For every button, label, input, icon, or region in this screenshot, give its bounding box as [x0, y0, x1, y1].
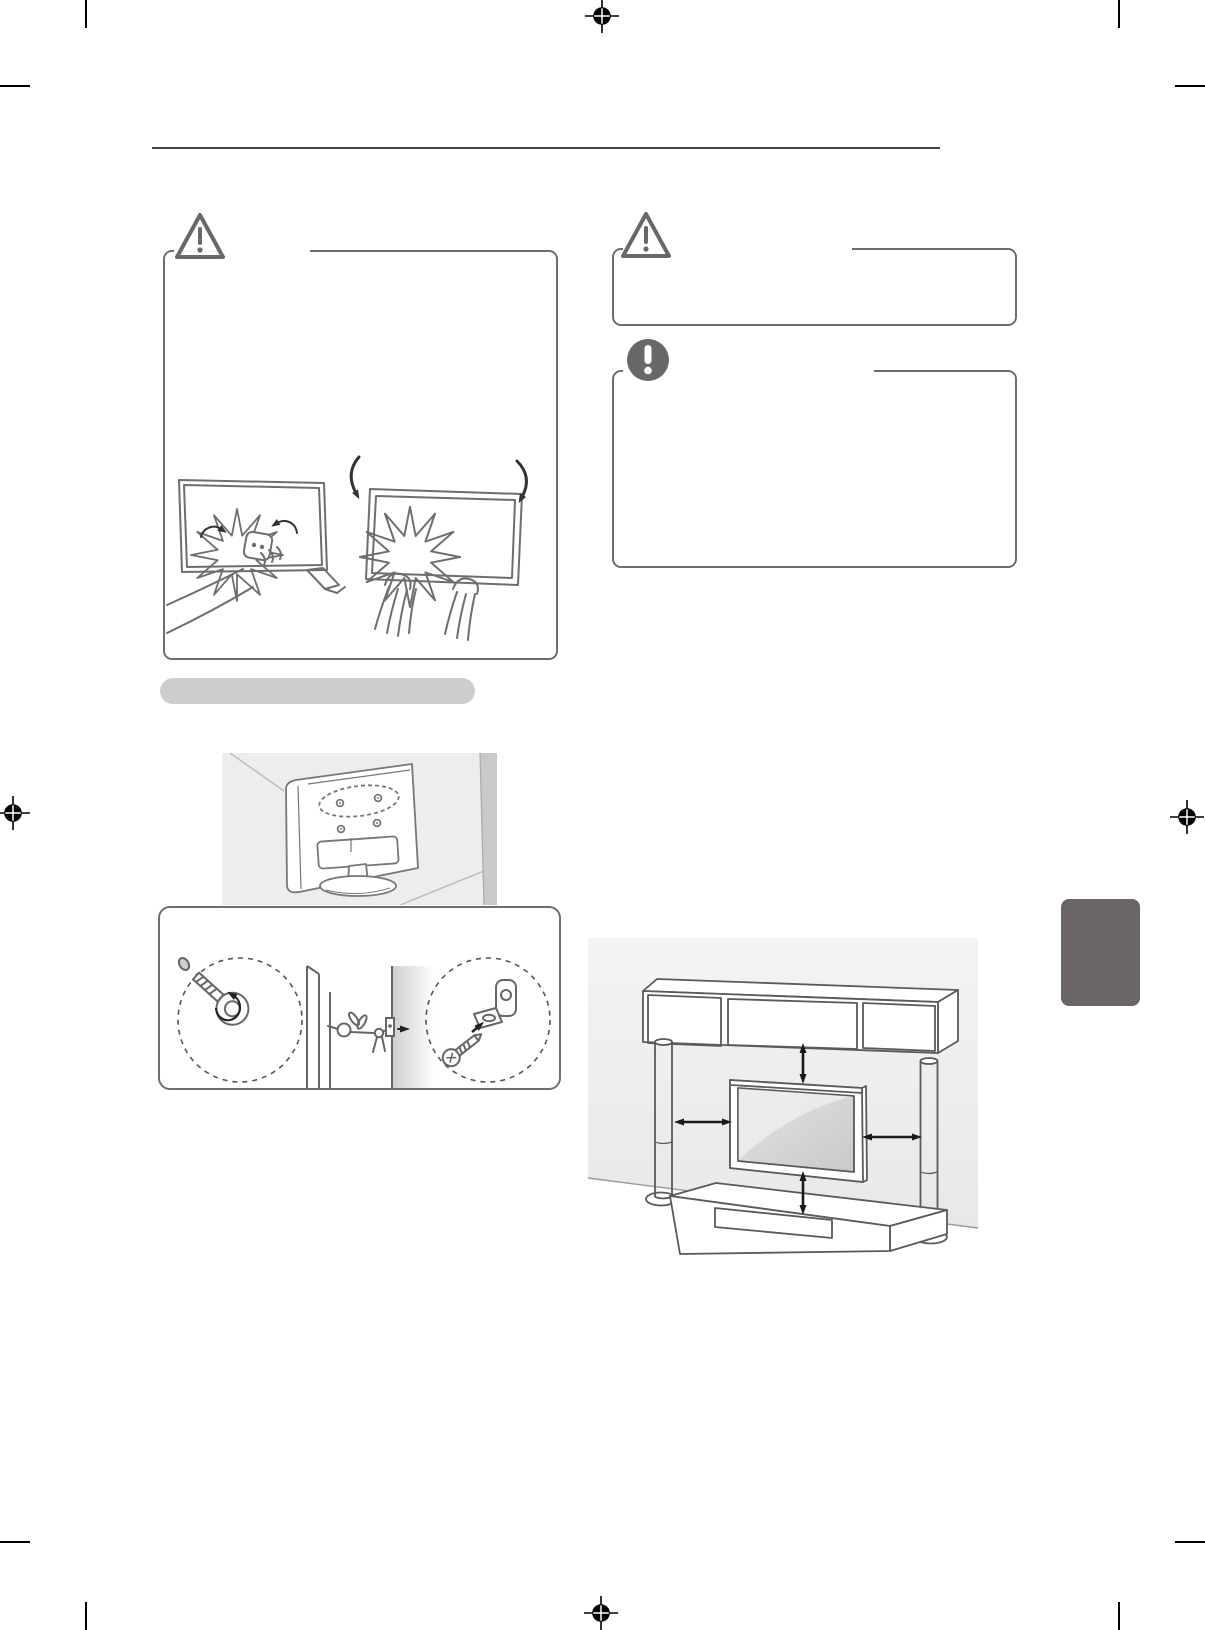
manual-page: [0, 0, 1205, 1630]
warning-triangle-icon: [172, 210, 228, 264]
warning-triangle-icon: [618, 209, 674, 263]
exclamation-circle-icon: [625, 337, 671, 383]
anchor-hardware-box: [158, 906, 561, 1090]
caution-box-left: [163, 250, 558, 660]
section-header-bar: [160, 678, 475, 704]
note-box: [612, 370, 1017, 568]
screen-pressure-illustration: [165, 437, 556, 656]
top-divider-rule: [152, 147, 940, 149]
anchor-hardware-illustration: [160, 908, 559, 1088]
chapter-side-tab: [1061, 899, 1140, 1006]
wall-corner-illustration: [222, 753, 497, 905]
clearance-illustration: [585, 935, 995, 1265]
